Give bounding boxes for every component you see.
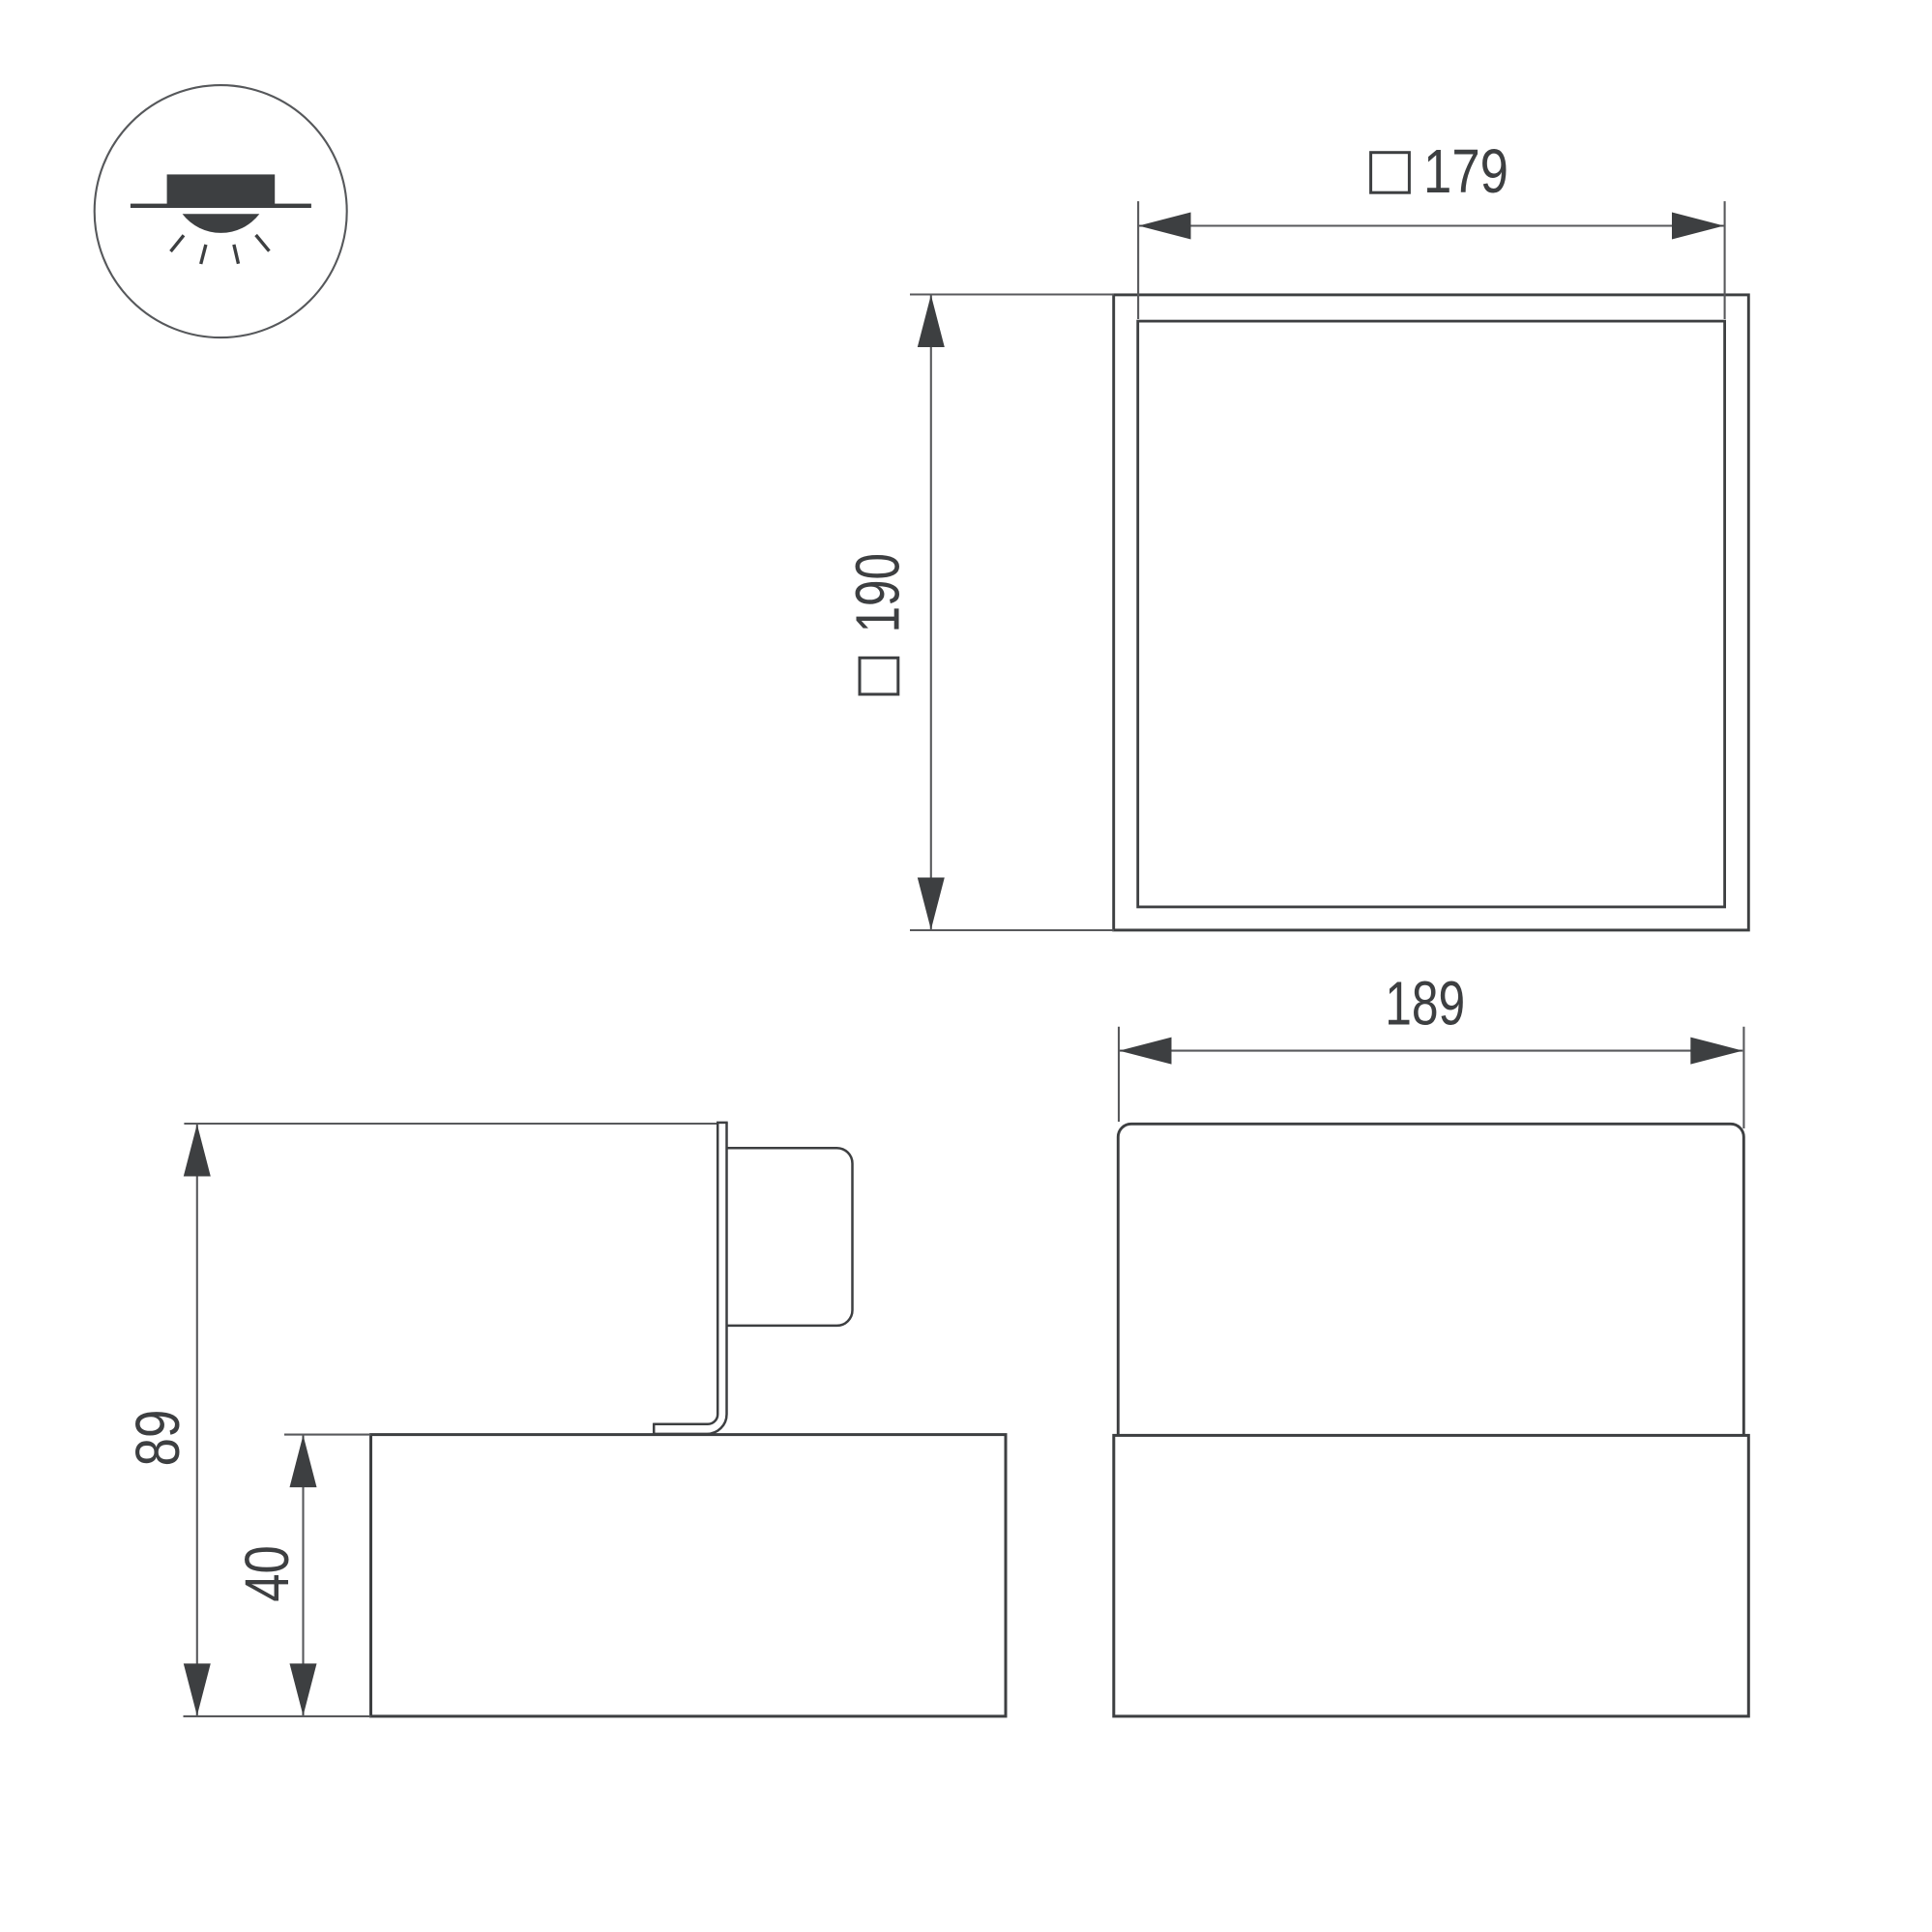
svg-text:40: 40 [232,1545,302,1602]
svg-text:179: 179 [1423,136,1508,206]
svg-text:89: 89 [123,1410,192,1467]
svg-text:190: 190 [843,553,913,632]
svg-text:189: 189 [1385,968,1465,1038]
